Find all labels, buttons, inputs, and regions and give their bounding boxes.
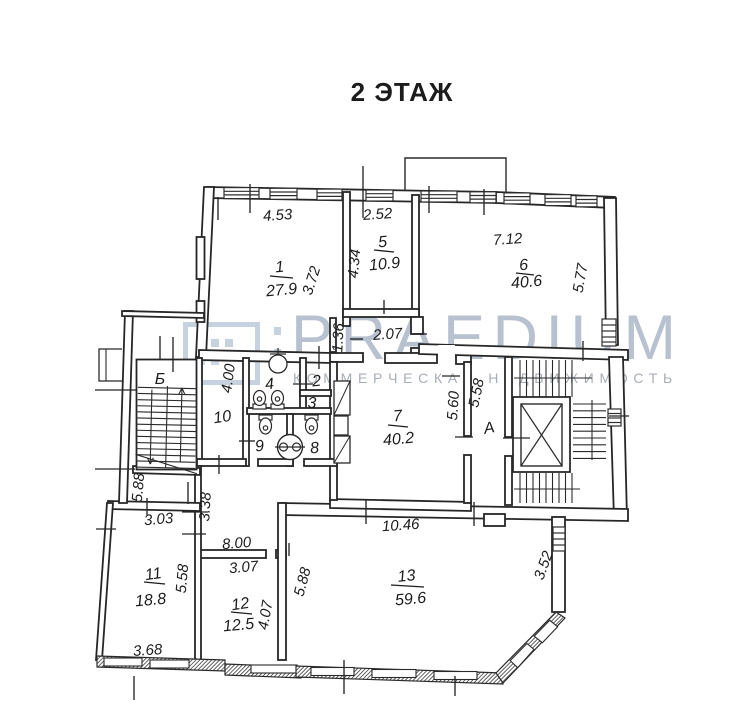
- svg-text:10.9: 10.9: [368, 255, 401, 275]
- svg-text:40.2: 40.2: [382, 430, 415, 450]
- svg-text:3.07: 3.07: [228, 558, 259, 578]
- svg-text:40.6: 40.6: [510, 273, 543, 293]
- svg-text:4.53: 4.53: [263, 206, 294, 225]
- svg-text:2.52: 2.52: [362, 205, 394, 224]
- svg-text:3.38: 3.38: [196, 491, 215, 522]
- svg-text:18.8: 18.8: [134, 591, 167, 611]
- svg-text:10.46: 10.46: [381, 516, 420, 536]
- svg-text:1.36: 1.36: [329, 322, 348, 353]
- svg-text:3.03: 3.03: [143, 510, 174, 530]
- svg-text:7.12: 7.12: [493, 230, 524, 249]
- svg-text:5.88: 5.88: [129, 472, 149, 503]
- svg-text:2 ЭТАЖ: 2 ЭТАЖ: [351, 77, 454, 107]
- svg-text:10: 10: [212, 408, 232, 427]
- svg-text:4.34: 4.34: [345, 248, 364, 279]
- svg-text:2.07: 2.07: [372, 325, 404, 344]
- svg-text:6: 6: [518, 257, 528, 275]
- svg-text:27.9: 27.9: [264, 281, 298, 301]
- svg-text:59.6: 59.6: [394, 590, 427, 610]
- svg-text:3.68: 3.68: [133, 641, 164, 660]
- svg-text:12: 12: [230, 595, 250, 614]
- svg-text:5.60: 5.60: [444, 390, 463, 421]
- svg-text:11: 11: [144, 565, 163, 584]
- svg-text:13: 13: [397, 567, 417, 586]
- svg-text:5.58: 5.58: [173, 563, 193, 594]
- svg-text:8: 8: [309, 440, 320, 458]
- svg-text:1: 1: [274, 259, 284, 277]
- svg-text:Б: Б: [155, 371, 165, 388]
- svg-text:3: 3: [308, 395, 317, 412]
- svg-text:9: 9: [254, 438, 265, 456]
- svg-text:2: 2: [310, 373, 322, 391]
- svg-text:12.5: 12.5: [222, 616, 255, 636]
- svg-text:4: 4: [264, 376, 275, 394]
- svg-text:5: 5: [377, 234, 387, 252]
- svg-text:8.00: 8.00: [221, 534, 252, 554]
